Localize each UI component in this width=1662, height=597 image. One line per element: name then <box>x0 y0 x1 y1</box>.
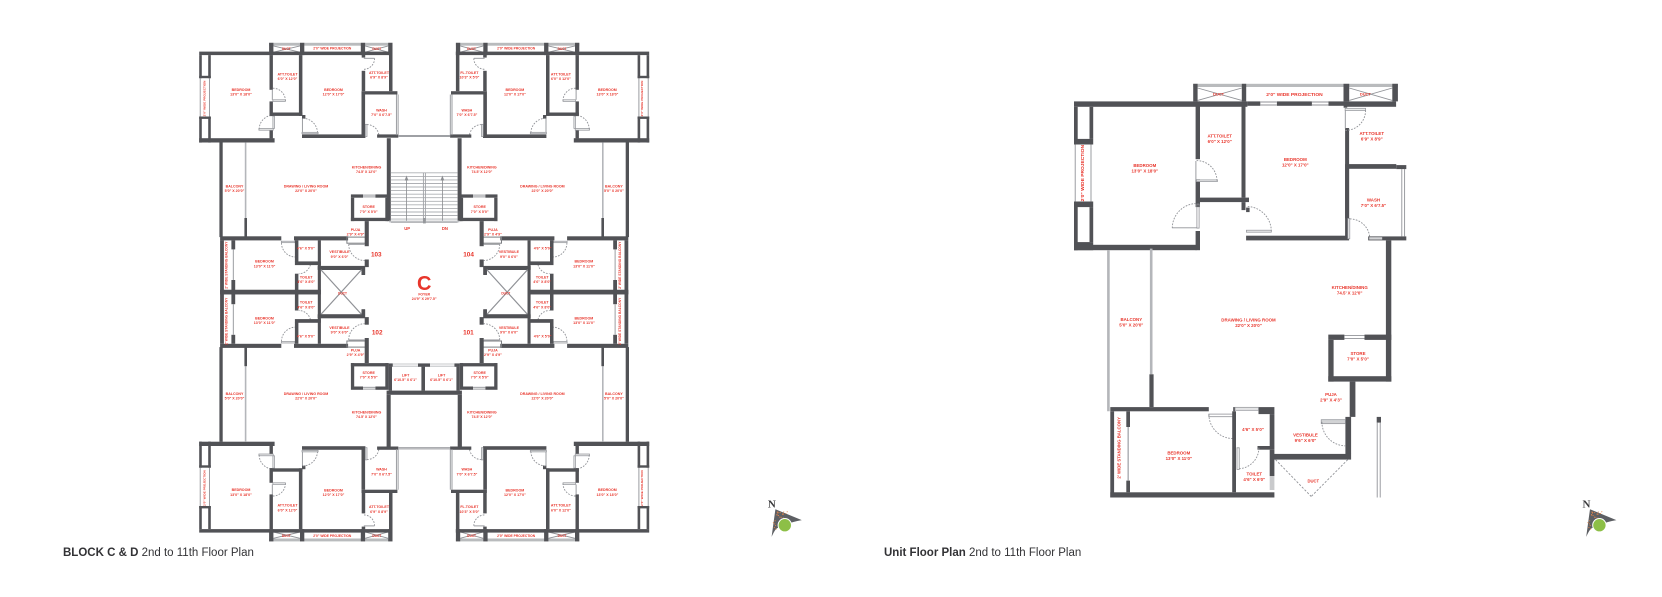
svg-text:ATT.TOILET: ATT.TOILET <box>551 72 572 76</box>
svg-text:ATT.TOILET: ATT.TOILET <box>369 505 390 509</box>
svg-text:2’ WIDE STANDING BALCONY: 2’ WIDE STANDING BALCONY <box>224 241 228 289</box>
svg-text:101: 101 <box>463 329 474 336</box>
svg-text:6’0" X 12’0": 6’0" X 12’0" <box>278 508 298 512</box>
svg-text:BEDROOM: BEDROOM <box>506 488 525 492</box>
svg-text:ATT.TOILET: ATT.TOILET <box>551 504 572 508</box>
svg-text:KITCHEN/DINING: KITCHEN/DINING <box>352 411 382 415</box>
svg-text:LIFT: LIFT <box>438 374 446 378</box>
svg-text:12’0" X 17’0": 12’0" X 17’0" <box>323 92 345 96</box>
svg-text:5’0" X 20’0": 5’0" X 20’0" <box>225 189 245 193</box>
svg-text:DUCT: DUCT <box>558 47 567 51</box>
svg-text:DUCT: DUCT <box>282 534 291 538</box>
svg-text:12’0" X 17’0": 12’0" X 17’0" <box>504 493 526 497</box>
svg-text:4’6" X 8’0": 4’6" X 8’0" <box>297 280 315 284</box>
svg-text:VESTIBULE: VESTIBULE <box>1293 433 1318 438</box>
svg-text:13’0" X 11’0": 13’0" X 11’0" <box>254 264 276 268</box>
svg-text:7’0" X 5’0": 7’0" X 5’0" <box>1347 357 1369 362</box>
svg-text:10’3" X 5’0": 10’3" X 5’0" <box>460 76 480 80</box>
svg-text:BEDROOM: BEDROOM <box>1167 451 1190 456</box>
svg-text:74.5’ X 12’0": 74.5’ X 12’0" <box>356 170 377 174</box>
svg-text:74.5’ X 12’0": 74.5’ X 12’0" <box>1337 291 1363 296</box>
svg-text:6’10.5" X 6’1": 6’10.5" X 6’1" <box>430 378 453 382</box>
svg-text:DUCT: DUCT <box>372 534 381 538</box>
svg-text:DN: DN <box>442 226 448 231</box>
svg-text:BLOCK C & D 2nd to 11th Floor: BLOCK C & D 2nd to 11th Floor Plan <box>63 547 254 559</box>
svg-text:TOILET: TOILET <box>300 301 314 305</box>
svg-text:2’0" WIDE PROJECTION: 2’0" WIDE PROJECTION <box>202 470 206 506</box>
svg-text:BALCONY: BALCONY <box>605 184 623 188</box>
svg-text:13’0" X 11’0": 13’0" X 11’0" <box>1166 456 1192 461</box>
svg-text:4’6" X 8’0": 4’6" X 8’0" <box>297 305 315 309</box>
svg-text:PUJA: PUJA <box>488 348 498 352</box>
svg-text:BEDROOM: BEDROOM <box>598 488 617 492</box>
svg-text:KITCHEN/DINING: KITCHEN/DINING <box>467 411 497 415</box>
svg-text:DUCT: DUCT <box>1307 478 1319 483</box>
svg-text:VESTIBULE: VESTIBULE <box>329 250 350 254</box>
svg-text:STORE: STORE <box>474 205 487 209</box>
svg-text:DRAWING / LIVING ROOM: DRAWING / LIVING ROOM <box>284 392 329 396</box>
svg-text:DUCT: DUCT <box>372 47 381 51</box>
svg-text:13’0" X 18’0": 13’0" X 18’0" <box>230 93 252 97</box>
svg-text:DUCT: DUCT <box>501 292 510 296</box>
svg-text:ATT.TOILET: ATT.TOILET <box>1360 131 1385 136</box>
svg-text:KITCHEN/DINING: KITCHEN/DINING <box>467 166 497 170</box>
svg-text:22’0" X 20’0": 22’0" X 20’0" <box>532 189 554 193</box>
svg-text:WASH: WASH <box>1367 197 1380 202</box>
svg-text:13’0" X 11’0": 13’0" X 11’0" <box>573 321 595 325</box>
svg-text:6’9" X 8’9": 6’9" X 8’9" <box>1361 136 1383 141</box>
svg-text:ATT.TOILET: ATT.TOILET <box>277 504 298 508</box>
svg-text:2’ WIDE STANDING BALCONY: 2’ WIDE STANDING BALCONY <box>618 297 622 345</box>
svg-text:BEDROOM: BEDROOM <box>255 316 274 320</box>
svg-text:STORE: STORE <box>363 371 376 375</box>
svg-text:BEDROOM: BEDROOM <box>232 88 251 92</box>
svg-text:9’0" X 6’0": 9’0" X 6’0" <box>500 331 518 335</box>
svg-text:13’0" X 11’0": 13’0" X 11’0" <box>573 264 595 268</box>
svg-text:BEDROOM: BEDROOM <box>506 88 525 92</box>
svg-text:74.5’ X 12’0": 74.5’ X 12’0" <box>471 415 492 419</box>
svg-text:2’ WIDE STANDING BALCONY: 2’ WIDE STANDING BALCONY <box>618 241 622 289</box>
svg-text:12’0" X 17’0": 12’0" X 17’0" <box>323 493 345 497</box>
svg-text:10’3" X 5’0": 10’3" X 5’0" <box>460 510 480 514</box>
svg-text:BEDROOM: BEDROOM <box>575 260 594 264</box>
svg-text:DRAWING / LIVING ROOM: DRAWING / LIVING ROOM <box>520 392 565 396</box>
svg-text:DUCT: DUCT <box>558 534 567 538</box>
svg-text:PUJA: PUJA <box>351 348 361 352</box>
svg-text:5’0" X 20’0": 5’0" X 20’0" <box>1119 322 1143 327</box>
svg-text:Unit Floor Plan 2nd to 11th Fl: Unit Floor Plan 2nd to 11th Floor Plan <box>884 547 1081 559</box>
svg-text:BEDROOM: BEDROOM <box>324 488 343 492</box>
svg-text:FL.TOILET: FL.TOILET <box>460 71 479 75</box>
svg-text:WASH: WASH <box>376 108 387 112</box>
svg-text:LIFT: LIFT <box>402 374 410 378</box>
svg-text:13’0" X 18’0": 13’0" X 18’0" <box>1131 169 1158 174</box>
svg-text:12’0" X 17’0": 12’0" X 17’0" <box>1282 163 1309 168</box>
svg-text:BEDROOM: BEDROOM <box>598 88 617 92</box>
svg-text:4’6" X 5’0": 4’6" X 5’0" <box>1242 427 1264 432</box>
svg-text:KITCHEN/DINING: KITCHEN/DINING <box>352 166 382 170</box>
svg-text:WASH: WASH <box>462 108 473 112</box>
svg-text:5’0" X 20’0": 5’0" X 20’0" <box>225 396 245 400</box>
svg-text:4’6" X 5’0": 4’6" X 5’0" <box>297 334 315 338</box>
svg-text:7’0" X 6’7.5": 7’0" X 6’7.5" <box>457 113 478 117</box>
svg-text:6’0" X 12’0": 6’0" X 12’0" <box>1208 139 1232 144</box>
svg-text:9’0" X 6’0": 9’0" X 6’0" <box>331 255 349 259</box>
svg-text:ATT.TOILET: ATT.TOILET <box>277 72 298 76</box>
svg-text:2’0" WIDE PROJECTION: 2’0" WIDE PROJECTION <box>1266 92 1323 98</box>
svg-text:BEDROOM: BEDROOM <box>575 316 594 320</box>
svg-text:7’0" X 6’7.5": 7’0" X 6’7.5" <box>371 113 392 117</box>
svg-text:6’0" X 12’0": 6’0" X 12’0" <box>278 77 298 81</box>
svg-text:22’0" X 20’0": 22’0" X 20’0" <box>1235 323 1262 328</box>
svg-text:4’6" X 5’0": 4’6" X 5’0" <box>297 247 315 251</box>
svg-text:VESTIBULE: VESTIBULE <box>499 250 520 254</box>
svg-text:BEDROOM: BEDROOM <box>1284 157 1307 162</box>
svg-text:ATT.TOILET: ATT.TOILET <box>369 71 390 75</box>
svg-text:2’0" WIDE PROJECTION: 2’0" WIDE PROJECTION <box>313 47 352 51</box>
svg-text:6’9" X 8’9": 6’9" X 8’9" <box>370 76 388 80</box>
svg-text:74.5’ X 12’0": 74.5’ X 12’0" <box>471 170 492 174</box>
svg-text:6’0" X 12’0": 6’0" X 12’0" <box>551 508 571 512</box>
svg-text:DUCT: DUCT <box>1213 92 1225 97</box>
svg-text:N: N <box>768 499 776 511</box>
svg-text:2’9" X 4’9": 2’9" X 4’9" <box>484 232 502 236</box>
svg-text:DUCT: DUCT <box>467 47 476 51</box>
svg-text:2’0" WIDE PROJECTION: 2’0" WIDE PROJECTION <box>640 470 644 506</box>
svg-text:2’9" X 4’3": 2’9" X 4’3" <box>1320 397 1342 402</box>
svg-text:4’6" X 6’0": 4’6" X 6’0" <box>1243 477 1265 482</box>
svg-text:7’0" X 5’0": 7’0" X 5’0" <box>471 376 489 380</box>
svg-text:5’0" X 20’0": 5’0" X 20’0" <box>604 396 624 400</box>
svg-text:N: N <box>1583 499 1591 511</box>
svg-text:7’0" X 5’0": 7’0" X 5’0" <box>360 210 378 214</box>
svg-text:22’0" X 20’0": 22’0" X 20’0" <box>532 396 554 400</box>
svg-text:13’0" X 18’0": 13’0" X 18’0" <box>597 493 619 497</box>
svg-text:103: 103 <box>371 251 382 258</box>
svg-text:104: 104 <box>463 251 474 258</box>
svg-text:4’6" X 5’0": 4’6" X 5’0" <box>534 247 552 251</box>
svg-text:22’0" X 20’0": 22’0" X 20’0" <box>295 396 317 400</box>
svg-text:KITCHEN/DINING: KITCHEN/DINING <box>1332 285 1369 290</box>
svg-text:2’0" WIDE PROJECTION: 2’0" WIDE PROJECTION <box>1080 145 1086 202</box>
svg-text:6’10.5" X 6’1": 6’10.5" X 6’1" <box>394 378 417 382</box>
svg-text:2’ WIDE STANDING BALCONY: 2’ WIDE STANDING BALCONY <box>224 297 228 345</box>
svg-text:FL.TOILET: FL.TOILET <box>460 505 479 509</box>
svg-text:DUCT: DUCT <box>338 292 347 296</box>
svg-text:4’6" X 8’0": 4’6" X 8’0" <box>533 305 551 309</box>
svg-text:TOILET: TOILET <box>300 275 314 279</box>
svg-text:DUCT: DUCT <box>282 47 291 51</box>
svg-text:2’9" X 4’9": 2’9" X 4’9" <box>484 353 502 357</box>
svg-text:STORE: STORE <box>1350 351 1365 356</box>
svg-text:7’0" X 6’7.5": 7’0" X 6’7.5" <box>371 472 392 476</box>
svg-text:6’9" X 8’9": 6’9" X 8’9" <box>370 510 388 514</box>
svg-text:TOILET: TOILET <box>536 275 550 279</box>
svg-text:12’0" X 17’0": 12’0" X 17’0" <box>504 92 526 96</box>
svg-text:7’0" X 6’7.5": 7’0" X 6’7.5" <box>457 472 478 476</box>
svg-text:24’9" X 29’7.5": 24’9" X 29’7.5" <box>412 297 437 301</box>
svg-text:UP: UP <box>404 226 410 231</box>
svg-text:BEDROOM: BEDROOM <box>1133 163 1156 168</box>
svg-text:102: 102 <box>372 329 383 336</box>
svg-text:DRAWING / LIVING ROOM: DRAWING / LIVING ROOM <box>284 184 329 188</box>
svg-text:4’6" X 5’0": 4’6" X 5’0" <box>534 334 552 338</box>
svg-text:BEDROOM: BEDROOM <box>255 260 274 264</box>
svg-text:2’9" X 4’9": 2’9" X 4’9" <box>347 232 365 236</box>
svg-text:9’6" X 6’0": 9’6" X 6’0" <box>1295 438 1317 443</box>
svg-text:2’0" WIDE PROJECTION: 2’0" WIDE PROJECTION <box>497 47 536 51</box>
svg-text:WASH: WASH <box>376 468 387 472</box>
svg-text:PUJA: PUJA <box>1325 392 1338 397</box>
svg-text:13’0" X 11’0": 13’0" X 11’0" <box>254 321 276 325</box>
svg-text:9’0" X 6’0": 9’0" X 6’0" <box>331 331 349 335</box>
svg-text:PUJA: PUJA <box>488 228 498 232</box>
svg-text:TOILET: TOILET <box>536 301 550 305</box>
svg-text:7’0" X 6’7.5": 7’0" X 6’7.5" <box>1361 203 1386 208</box>
svg-text:PUJA: PUJA <box>351 228 361 232</box>
svg-text:2’ WIDE STANDING BALCONY: 2’ WIDE STANDING BALCONY <box>1117 417 1122 479</box>
svg-text:2’0" WIDE PROJECTION: 2’0" WIDE PROJECTION <box>640 80 644 116</box>
svg-text:9’0" X 6’0": 9’0" X 6’0" <box>500 255 518 259</box>
svg-text:2’0" WIDE PROJECTION: 2’0" WIDE PROJECTION <box>202 80 206 116</box>
svg-text:2’0" WIDE PROJECTION: 2’0" WIDE PROJECTION <box>497 534 536 538</box>
svg-text:13’0" X 18’0": 13’0" X 18’0" <box>230 493 252 497</box>
svg-text:VESTIBULE: VESTIBULE <box>329 326 350 330</box>
svg-text:2’0" WIDE PROJECTION: 2’0" WIDE PROJECTION <box>313 534 352 538</box>
svg-text:BEDROOM: BEDROOM <box>232 488 251 492</box>
svg-text:13’0" X 18’0": 13’0" X 18’0" <box>597 93 619 97</box>
svg-text:7’0" X 5’0": 7’0" X 5’0" <box>360 376 378 380</box>
svg-text:VESTIBULE: VESTIBULE <box>499 326 520 330</box>
svg-text:BALCONY: BALCONY <box>226 184 244 188</box>
svg-text:74.5’ X 12’0": 74.5’ X 12’0" <box>356 415 377 419</box>
svg-text:BEDROOM: BEDROOM <box>324 88 343 92</box>
svg-text:BALCONY: BALCONY <box>226 392 244 396</box>
svg-text:DUCT: DUCT <box>1360 92 1372 97</box>
svg-text:WASH: WASH <box>462 468 473 472</box>
svg-text:4’6" X 8’0": 4’6" X 8’0" <box>533 280 551 284</box>
svg-text:6’0" X 12’0": 6’0" X 12’0" <box>551 77 571 81</box>
svg-text:STORE: STORE <box>474 371 487 375</box>
svg-text:FOYER: FOYER <box>418 293 430 297</box>
svg-text:ATT.TOILET: ATT.TOILET <box>1207 133 1232 138</box>
svg-text:BALCONY: BALCONY <box>1120 317 1142 322</box>
svg-text:BALCONY: BALCONY <box>605 392 623 396</box>
svg-text:DRAWING / LIVING ROOM: DRAWING / LIVING ROOM <box>520 184 565 188</box>
svg-text:STORE: STORE <box>363 205 376 209</box>
svg-text:2’9" X 4’9": 2’9" X 4’9" <box>347 353 365 357</box>
svg-text:5’0" X 20’0": 5’0" X 20’0" <box>604 189 624 193</box>
svg-text:DUCT: DUCT <box>467 534 476 538</box>
svg-text:TOILET: TOILET <box>1247 472 1263 477</box>
svg-text:22’0" X 20’0": 22’0" X 20’0" <box>295 189 317 193</box>
svg-text:7’0" X 5’0": 7’0" X 5’0" <box>471 210 489 214</box>
svg-text:DRAWING / LIVING ROOM: DRAWING / LIVING ROOM <box>1221 318 1276 323</box>
